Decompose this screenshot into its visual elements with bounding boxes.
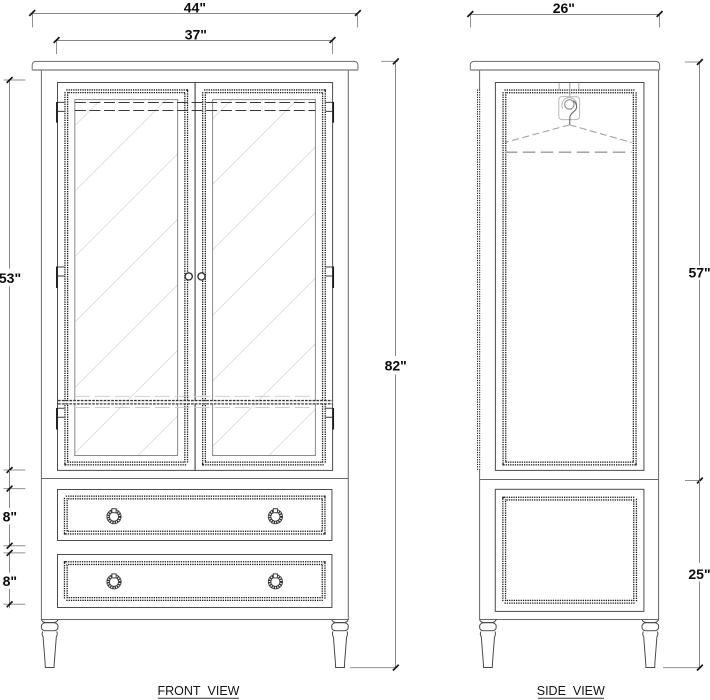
svg-text:8": 8" xyxy=(3,509,17,525)
svg-text:82": 82" xyxy=(385,358,407,374)
svg-text:SIDE VIEW: SIDE VIEW xyxy=(537,684,605,698)
svg-text:25": 25" xyxy=(688,566,710,582)
svg-text:26": 26" xyxy=(553,0,575,16)
svg-text:8": 8" xyxy=(3,573,17,589)
svg-text:FRONT VIEW: FRONT VIEW xyxy=(158,684,240,698)
svg-text:57": 57" xyxy=(688,264,710,280)
svg-text:53": 53" xyxy=(0,270,21,286)
svg-text:37": 37" xyxy=(185,26,207,42)
svg-text:44": 44" xyxy=(184,0,206,16)
